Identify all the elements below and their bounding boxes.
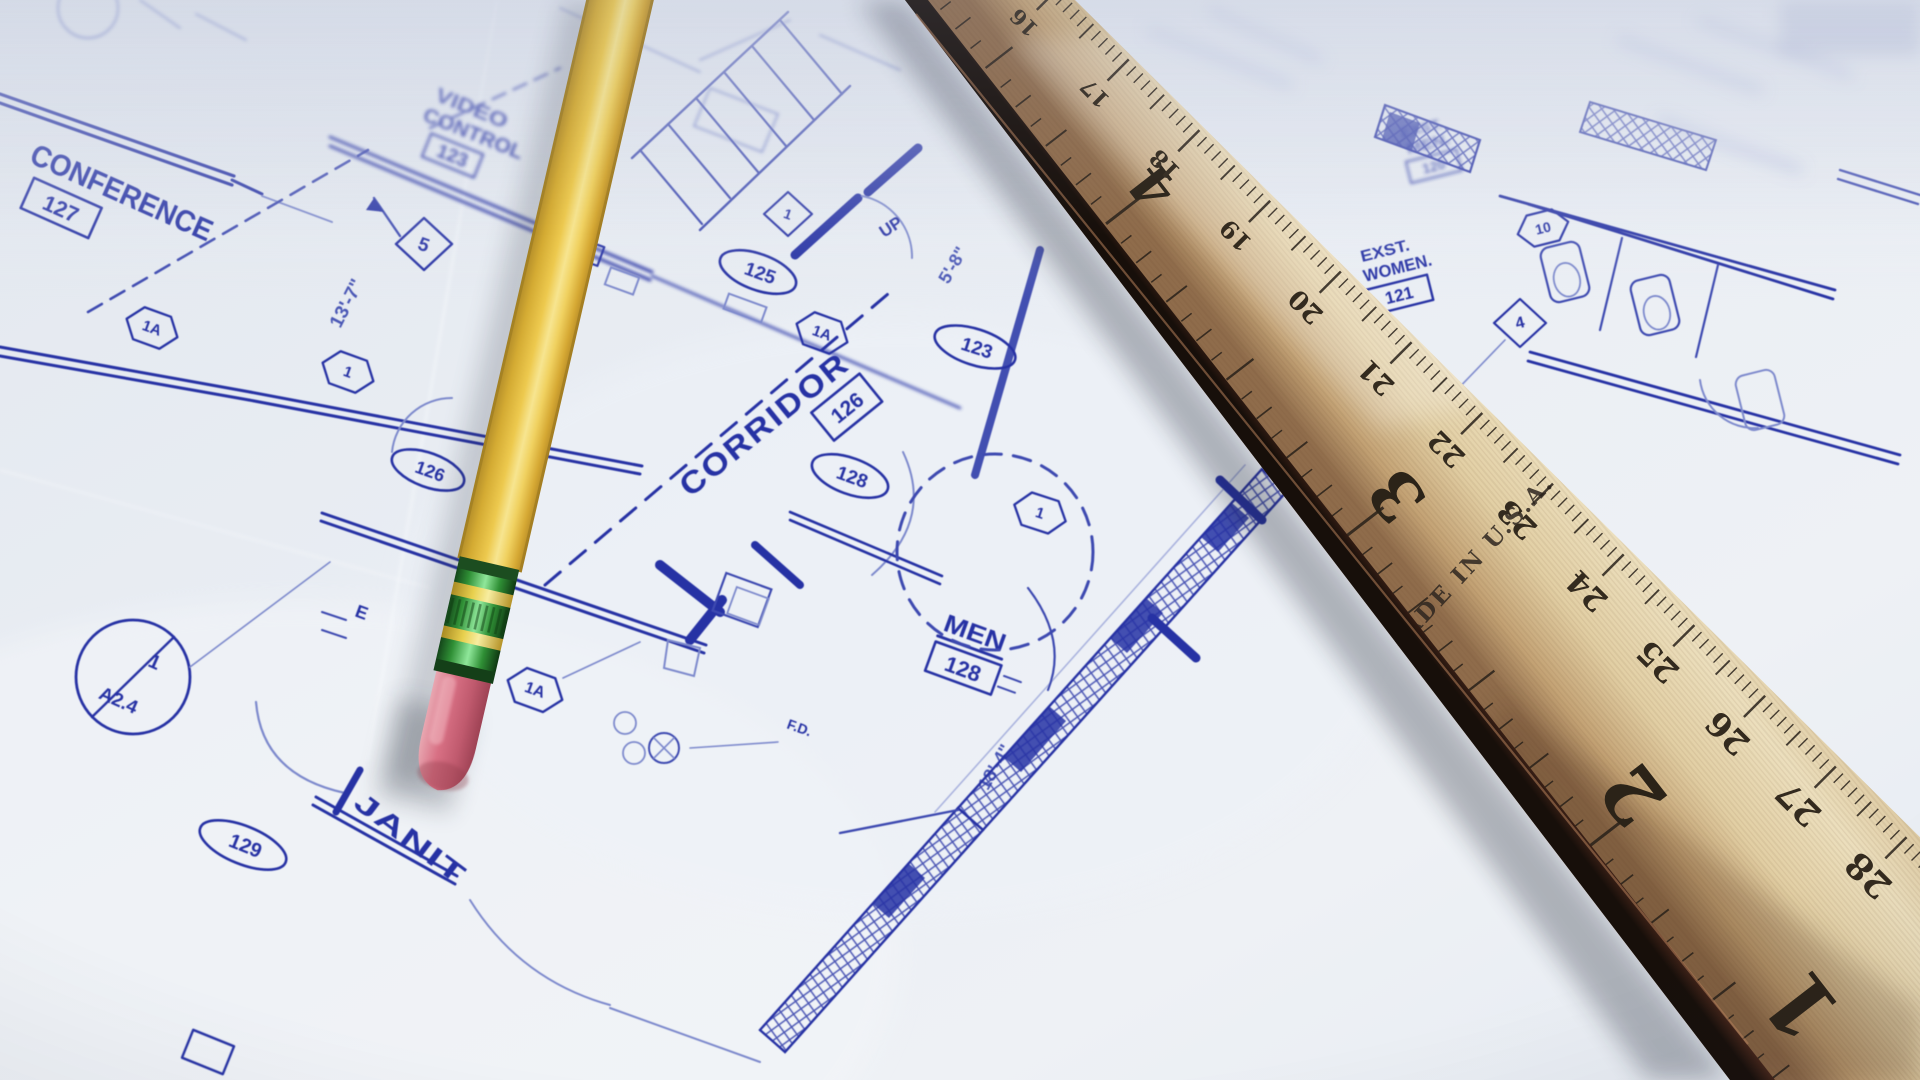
blueprint-photo-scene: CONFERENCE 127 13'-7" 5 1A 1 VIDEO CONTR… <box>0 0 1920 1080</box>
scene-svg: CONFERENCE 127 13'-7" 5 1A 1 VIDEO CONTR… <box>0 0 1920 1080</box>
